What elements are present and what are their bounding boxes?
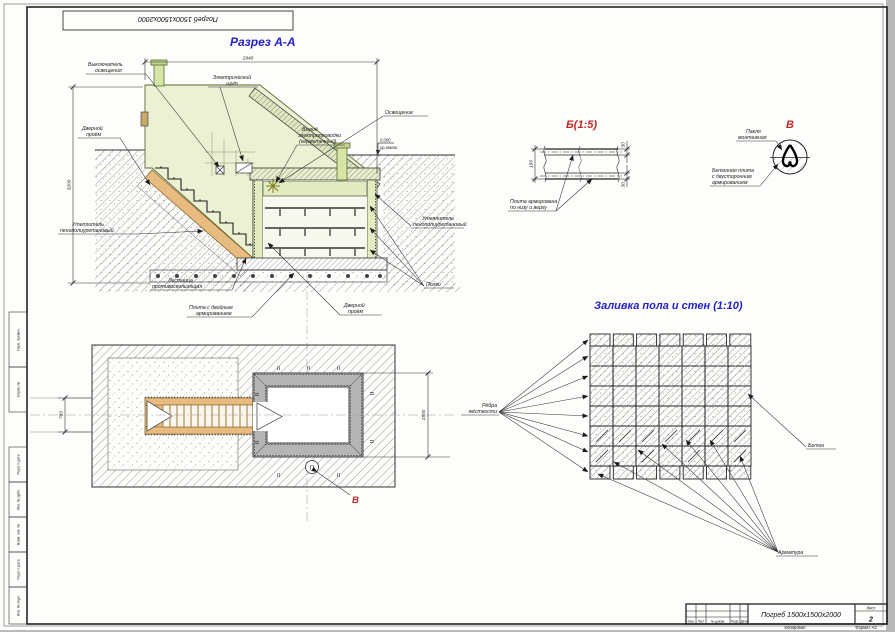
- svg-text:Бетон: Бетон: [808, 443, 824, 449]
- side-label: Взам. инв. №: [17, 524, 21, 545]
- plan-dim-left-text: 780: [59, 411, 65, 419]
- pour-grid: [590, 334, 751, 479]
- detail-circle-letter: П: [310, 466, 314, 472]
- detail-v-ref: В: [352, 495, 359, 506]
- dim-30-top: 30: [621, 142, 627, 148]
- lamp-symbol: [266, 179, 280, 193]
- svg-text:Лист: Лист: [698, 620, 705, 624]
- plan-view: п п п п п п п п п 780 1: [30, 345, 455, 506]
- side-label: Перв. примен.: [17, 328, 21, 351]
- svg-text:п: п: [337, 366, 340, 372]
- svg-text:Электрический: Электрический: [213, 74, 251, 81]
- svg-text:Арматура: Арматура: [777, 550, 803, 556]
- svg-text:п: п: [277, 473, 280, 479]
- level-value: 0.000: [380, 138, 391, 143]
- section-title: Разрез А-А: [230, 35, 296, 49]
- svg-text:Изм.: Изм.: [688, 620, 695, 624]
- copied-label: Копировал: [785, 625, 807, 630]
- svg-text:щит: щит: [226, 81, 238, 87]
- svg-text:п: п: [337, 473, 340, 479]
- svg-text:противоскользящая: противоскользящая: [152, 284, 202, 290]
- svg-text:армированием: армированием: [712, 180, 748, 186]
- sheet-label: Лист: [866, 606, 875, 611]
- drawing-page: Погреб 1500x1500x2000 Перв. примен. Спра…: [0, 0, 895, 632]
- paper: [0, 0, 886, 630]
- side-label: Справ. №: [17, 381, 21, 397]
- dim-30-bottom: 30: [621, 182, 627, 188]
- svg-text:проём: проём: [348, 309, 364, 315]
- svg-text:п: п: [307, 366, 310, 372]
- top-stamp-text: Погреб 1500x1500x2000: [138, 15, 218, 23]
- plan-dim-right-text: 1500: [421, 409, 427, 420]
- svg-text:по низу и верху: по низу и верху: [510, 205, 547, 211]
- detail-b-title: Б(1:5): [566, 119, 597, 131]
- side-label: Подп. и дата: [17, 559, 21, 579]
- format-label: Формат А3: [855, 625, 877, 630]
- svg-text:пенополиуретановый: пенополиуретановый: [60, 227, 114, 234]
- side-label: Инв. № дубл.: [17, 489, 21, 510]
- title-block-project: Погреб 1500x1500x2000: [761, 611, 841, 619]
- svg-text:пенополиуретановый: пенополиуретановый: [413, 221, 467, 228]
- pour-title: Заливка пола и стен (1:10): [594, 300, 743, 312]
- svg-text:№ докум.: № докум.: [711, 620, 725, 624]
- level-note: ур.земли: [379, 145, 398, 150]
- svg-text:жёсткости: жёсткости: [467, 409, 497, 415]
- drawing-sheet: Погреб 1500x1500x2000 Перв. примен. Спра…: [0, 0, 895, 632]
- svg-text:п: п: [255, 441, 261, 444]
- side-label: Подп. и дата: [17, 454, 21, 474]
- svg-text:п: п: [255, 393, 261, 396]
- svg-text:п: п: [277, 366, 280, 372]
- svg-text:Полки: Полки: [426, 282, 441, 288]
- svg-text:проём: проём: [86, 132, 102, 138]
- dim-width-text: 2940: [242, 56, 254, 62]
- electric-panel-symbol: [236, 163, 252, 173]
- svg-text:Дата: Дата: [740, 620, 747, 624]
- svg-text:монтажная: монтажная: [738, 135, 767, 141]
- title-block-headers: Изм. Лист № докум. Подп. Дата: [688, 620, 748, 624]
- dim-height-text: 3200: [67, 179, 73, 190]
- detail-v-title: В: [786, 119, 794, 131]
- svg-text:армированием: армированием: [196, 311, 232, 317]
- svg-text:освещения: освещения: [95, 68, 122, 74]
- svg-text:(герметичный): (герметичный): [299, 138, 337, 145]
- door-marker: [141, 112, 148, 126]
- svg-text:п: п: [368, 440, 374, 443]
- sheet-number: 2: [868, 617, 873, 624]
- svg-text:Освещение: Освещение: [385, 110, 413, 116]
- svg-text:Подп.: Подп.: [731, 620, 740, 624]
- svg-text:Плита с двойным: Плита с двойным: [189, 304, 233, 311]
- svg-text:п: п: [368, 392, 374, 395]
- light-switch-symbol: [216, 166, 224, 174]
- side-label: Инв. № подл.: [17, 595, 21, 616]
- svg-text:Дверной: Дверной: [343, 302, 365, 309]
- svg-text:Дверной: Дверной: [81, 125, 103, 132]
- dim-150: 150: [529, 160, 535, 168]
- plan-corridor: [145, 397, 257, 435]
